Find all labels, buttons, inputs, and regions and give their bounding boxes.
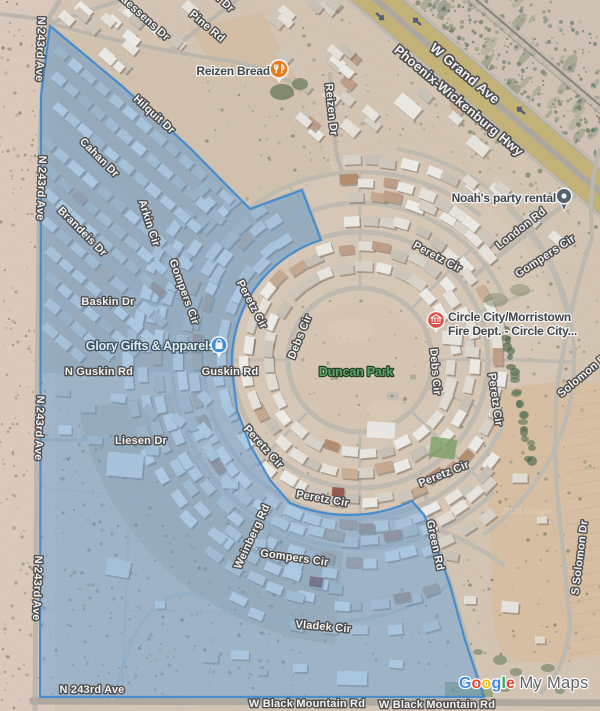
svg-text:G: G <box>459 675 471 692</box>
svg-text:o: o <box>482 675 492 692</box>
svg-text:o: o <box>472 675 482 692</box>
svg-text:My Maps: My Maps <box>520 674 589 692</box>
svg-text:g: g <box>492 675 502 692</box>
svg-text:2026 Google: 2026 Google <box>503 506 552 516</box>
svg-text:e: e <box>506 675 515 692</box>
